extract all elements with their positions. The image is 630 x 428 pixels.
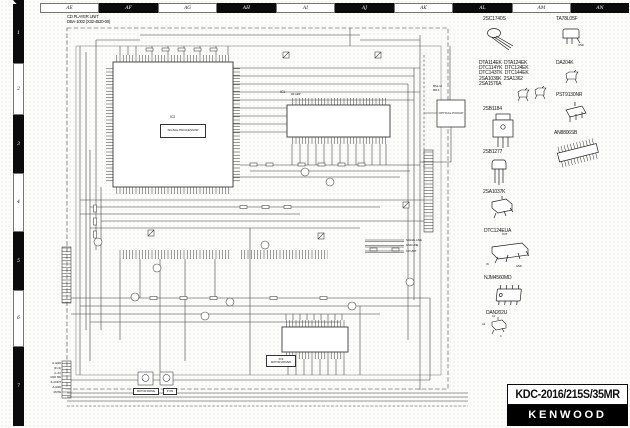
connector-left-bottom (62, 361, 71, 398)
dan202u-package-icon (486, 317, 512, 337)
brand-logo: KENWOOD (528, 409, 606, 421)
package-label-group-5: 2SA1576A (479, 82, 501, 87)
motor-drive-callout: MOTOR DRIVE (133, 388, 159, 395)
dan202u-c-caption: C (500, 335, 502, 338)
optical-pickup-label: OPTICAL PICKUP (437, 100, 465, 127)
p-on-label: P ON (167, 390, 173, 393)
ic2-desc-box: SIGNAL PROCESSOR (160, 124, 206, 138)
2sb1184-package-icon (489, 112, 517, 152)
schematic-canvas (0, 0, 630, 428)
brand-logo-box: KENWOOD (507, 405, 628, 426)
legend-label-3: CD UNIT (406, 250, 417, 253)
to92-package-icon (486, 26, 518, 52)
an8806sb-package-icon (552, 138, 606, 168)
cn1-pin-label: (R ch) (44, 367, 61, 370)
ic3-label-box: IC3 MOTOR DRIVER (266, 355, 296, 367)
ta78l05f-gnd-caption: GND (578, 44, 584, 47)
ic1-body (287, 105, 390, 137)
package-label-an8806sb: AN8806SB (554, 131, 577, 136)
ta78l05f-package-icon (560, 26, 586, 52)
cn1-pin-label: IL-CONT (44, 381, 61, 384)
ic2-ref: IC2 (170, 116, 175, 120)
dtc124eua-package-icon (488, 235, 532, 267)
connector-left-mid (62, 247, 71, 303)
dan202u-a2-caption: A2 (482, 323, 485, 326)
unit-subtitle: DBA-1002 (X32-4520-00) (67, 20, 110, 25)
motor-drive-label: MOTOR DRIVE (137, 390, 155, 393)
ic2-desc: SIGNAL PROCESSOR (168, 129, 199, 132)
ic3-desc: MOTOR DRIVER (271, 361, 291, 364)
model-number-box: KDC-2016/215S/35MR (507, 384, 628, 405)
sot23-package-icon (516, 88, 532, 103)
boxed-components (138, 372, 173, 385)
model-number: KDC-2016/215S/35MR (515, 389, 619, 401)
ic1-desc: RF AMP (291, 93, 301, 96)
package-label-njm4560md: NJM4560MD (484, 276, 511, 281)
schematic-sheet: AE AF AG AH AI AJ AK AL AM AN 1 2 3 4 5 … (0, 0, 630, 428)
njm4560md-package-icon (490, 283, 530, 309)
cn1-pin-label: GND SW (44, 376, 61, 379)
dtc124eua-in-caption: IN (486, 263, 489, 266)
legend-label-2: GND LINE (406, 244, 418, 247)
dan202u-a1-caption: A1 (492, 315, 495, 318)
p-on-callout: P ON (163, 388, 177, 395)
da204k-package-icon (563, 70, 581, 85)
ic3-body (282, 327, 348, 352)
sot23-package-icon (533, 86, 549, 101)
cn1-pin-label: MUTE (44, 391, 61, 394)
connector-right (424, 150, 433, 232)
package-label-2sa1037k: 2SA1037K (483, 190, 505, 195)
package-label-2sc1740s: 2SC1740S (483, 17, 506, 22)
package-label-dan202u: DAN202U (486, 311, 507, 316)
legend-label-1: SIGNAL LINE (406, 239, 422, 242)
cn1-pin-label: A-GND (44, 386, 61, 389)
cn1-pin-label: (L ch) (44, 372, 61, 375)
package-label-pst9130nr: PST9130NR (556, 93, 582, 98)
optical-pickup-model-2: MR-F (433, 89, 439, 92)
cn1-pin-label: IL-GND (44, 362, 61, 365)
2sb1277-package-icon (489, 158, 509, 190)
pst9130nr-package-icon (562, 101, 590, 127)
2sa1037k-package-icon (486, 196, 518, 222)
dtc124eua-out-caption: OUT (502, 233, 507, 236)
package-label-da204k: DA204K (556, 61, 573, 66)
package-label-ta78l05f: TA78L05F (556, 17, 577, 22)
ic1-ref: IC1 (280, 91, 285, 95)
dtc124eua-gnd-caption: GND (516, 265, 522, 268)
